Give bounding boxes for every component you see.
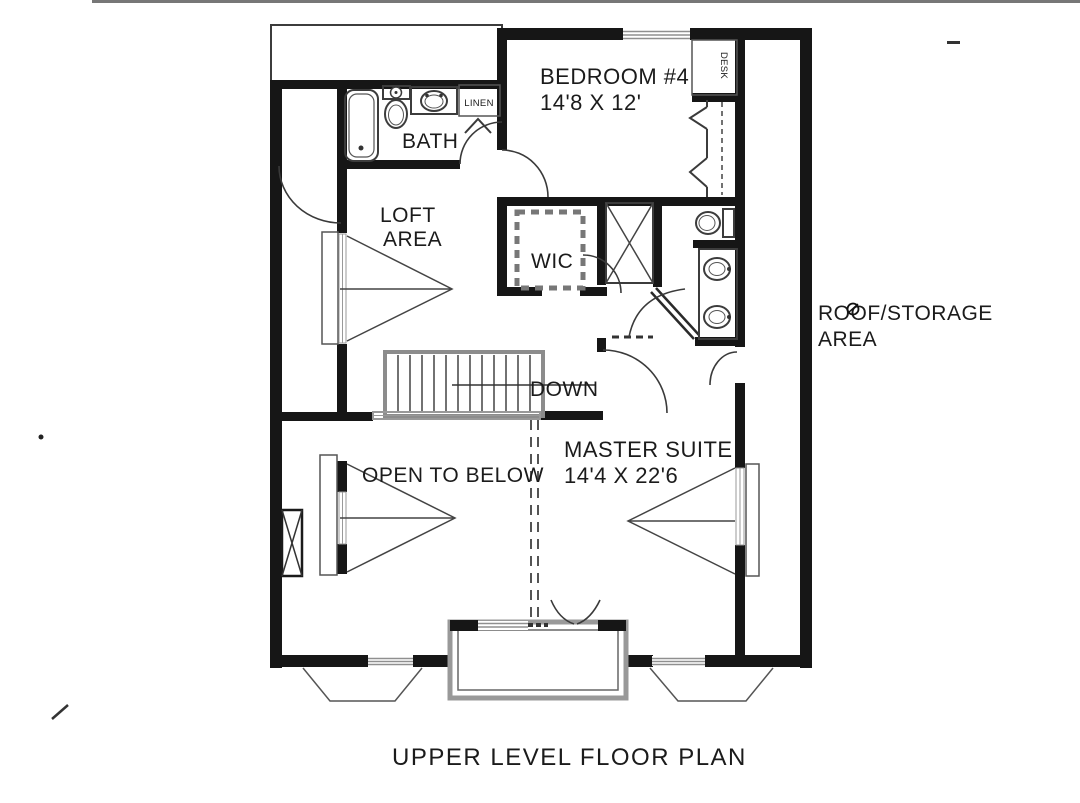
- double-vanity: [699, 249, 737, 339]
- bedroom4-closet: [690, 100, 707, 197]
- master-suite-dims: 14'4 X 22'6: [564, 463, 678, 488]
- ceiling-break-dashed-line: [531, 420, 538, 621]
- roof-storage-label-line2: AREA: [818, 328, 877, 351]
- dashed-lines: [517, 102, 722, 621]
- window-triangle-loft: [340, 236, 452, 341]
- bay-window-left: [303, 668, 422, 701]
- desk-nook: [692, 40, 737, 95]
- bedroom4-label: BEDROOM #4: [540, 64, 689, 89]
- water-closet-toilet: [696, 209, 734, 237]
- roof-strip-outline: [271, 25, 502, 83]
- linen-closet: [459, 85, 500, 133]
- master-bath-door-arc: [629, 289, 685, 337]
- scan-tick-mark: [947, 41, 960, 44]
- loft-label-line2: AREA: [383, 228, 442, 251]
- bottom-left-window: [368, 656, 413, 666]
- bath-door-arc: [460, 122, 502, 164]
- scan-dot: [39, 435, 44, 440]
- shower-stall: [606, 203, 653, 283]
- plan-title: UPPER LEVEL FLOOR PLAN: [392, 744, 747, 771]
- storage-door-arc: [710, 352, 737, 385]
- bedroom4-window: [623, 29, 690, 39]
- bath-label: BATH: [402, 130, 458, 153]
- bay-window-right: [650, 668, 773, 701]
- master-suite-door-arc: [603, 350, 667, 413]
- bifold-door-chevron: [690, 107, 707, 129]
- open-to-below-label: OPEN TO BELOW: [362, 464, 544, 487]
- fireplace-chimney: [282, 510, 302, 576]
- loft-label-line1: LOFT: [380, 204, 436, 227]
- stairs-down-label: DOWN: [530, 378, 599, 401]
- bedroom4-door-arc: [502, 150, 548, 197]
- angled-wall: [651, 288, 699, 339]
- windows: [320, 29, 759, 666]
- roof-storage-label-line1: ROOF/STORAGE: [818, 302, 993, 325]
- scan-edge-line: [92, 0, 1080, 3]
- vanity-sink: [411, 87, 457, 114]
- master-bath-fixtures: [606, 203, 737, 339]
- floor-plan-page: BEDROOM #4 14'8 X 12' BATH LINEN DESK LO…: [0, 0, 1080, 803]
- bottom-right-window: [652, 656, 705, 666]
- linen-door-chevron: [465, 119, 491, 133]
- master-suite-label: MASTER SUITE: [564, 437, 733, 462]
- toilet: [383, 86, 410, 128]
- loft-door-arc: [279, 166, 341, 223]
- wic-label: WIC: [531, 250, 573, 273]
- floor-plan-drawing: BEDROOM #4 14'8 X 12' BATH LINEN DESK LO…: [0, 0, 1080, 803]
- bedroom4-dims: 14'8 X 12': [540, 90, 641, 115]
- linen-label: LINEN: [464, 98, 493, 109]
- bifold-door-chevron: [690, 158, 707, 187]
- desk-label: DESK: [718, 52, 729, 79]
- scan-pen-mark: [52, 705, 68, 719]
- bathtub: [345, 90, 378, 161]
